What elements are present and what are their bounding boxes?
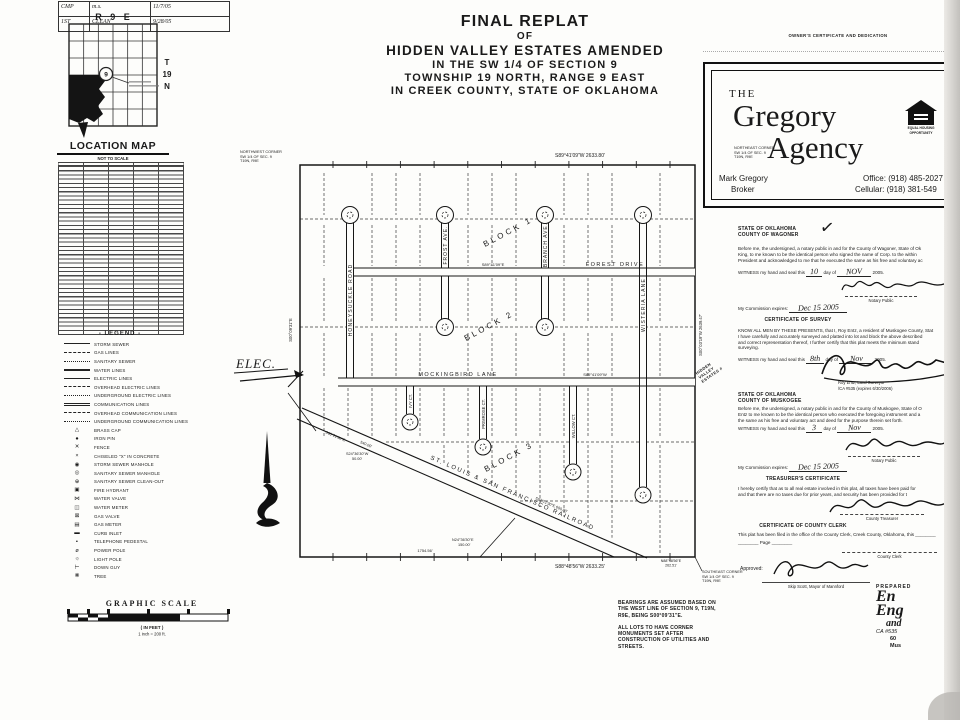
scan-corner-smudge [928, 692, 960, 720]
west-bearing: S00°09'31"E [288, 318, 293, 342]
legend-item: ⊢DOWN GUY [60, 563, 235, 572]
title-line: HIDDEN VALLEY ESTATES AMENDED [350, 43, 700, 59]
legend-label: LIGHT POLE [94, 557, 122, 562]
muskogee-county: COUNTY OF MUSKOGEE [738, 398, 802, 404]
commission-blank: Dec 15 2005 [789, 464, 847, 472]
scale-ticks [67, 609, 230, 614]
street-frost: FROST AVE. [443, 226, 449, 265]
legend-label: UNDERGROUND COMMUNICATION LINES [94, 419, 188, 424]
handwritten-date: Dec 15 2005 [798, 463, 839, 470]
block-1-label: BLOCK 1 [482, 215, 535, 249]
title-line: FINAL REPLAT [350, 12, 700, 31]
legend-title: - LEGEND - [60, 331, 180, 337]
cert-text-line: the same as his free and voluntary act a… [738, 418, 903, 424]
title-line: TOWNSHIP 19 NORTH, RANGE 9 EAST [350, 72, 700, 85]
legend-item: ▬CURB INLET [60, 529, 235, 538]
witness-text: WITNESS my hand and seal this [738, 357, 805, 362]
legend-label: TELEPHONE PEDESTAL [94, 539, 148, 544]
legend-item: △BRASS CAP [60, 426, 235, 435]
illegible-note [129, 81, 151, 83]
se-dim: 262.51' [665, 564, 677, 568]
legend-label: STORM SEWER [94, 342, 129, 347]
light-pole-icon: ☼ [60, 555, 94, 563]
legend-label: WATER METER [94, 505, 128, 510]
line-sample-icon [60, 418, 94, 426]
curve-table [58, 162, 184, 335]
legend-label: IRON PIN [94, 436, 115, 441]
witness-text: 2005. [873, 426, 885, 431]
cert-text-line: This plat has been filed in the office o… [738, 532, 936, 538]
legend-item: ❋TREE [60, 572, 235, 581]
legend-label: POWER POLE [94, 548, 126, 553]
chiseled-x-icon: × [60, 452, 94, 460]
legend-item: ELECTRIC LINES [60, 374, 235, 383]
title-line: IN THE SW 1/4 OF SECTION 9 [350, 59, 700, 72]
legend-item: GAS LINES [60, 349, 235, 358]
agency-name-agency: Agency [767, 130, 863, 166]
scale-title: GRAPHIC SCALE [106, 599, 198, 608]
clerk-cert-title: CERTIFICATE OF COUNTY CLERK [728, 523, 878, 529]
cert-text-line: President and acknowledged to me that he… [738, 258, 923, 264]
surveyor-license: /CA #535 (expires 6/30/2006) [838, 386, 892, 391]
se-bearing: N88°48'56"E [661, 559, 682, 563]
township-label: T [165, 58, 170, 67]
scale-feet-label: ( IN FEET ) [141, 625, 164, 630]
bearings-note: BEARINGS ARE ASSUMED BASED ON THE WEST L… [618, 600, 716, 619]
legend-item: ◫WATER METER [60, 503, 235, 512]
legend-item: ▪TELEPHONE PEDESTAL [60, 538, 235, 547]
commission-label: My Commission expires: [738, 465, 788, 470]
elec-annotation: ELEC. [234, 356, 304, 387]
fire-hydrant-icon: ▣ [60, 486, 94, 494]
survey-notes: BEARINGS ARE ASSUMED BASED ON THE WEST L… [618, 600, 716, 650]
handwritten-date: Dec 15 2005 [798, 304, 839, 311]
mockingbird-bearing: S89°41'09"W [583, 372, 607, 377]
legend-item: ●IRON PIN [60, 435, 235, 444]
commission-line: My Commission expires: Dec 15 2005 [738, 464, 847, 472]
notary-caption: Notary Public [845, 296, 917, 303]
leader-line [112, 77, 129, 83]
cert-text-line: ________ Page ________ [738, 540, 792, 546]
equal-housing-logo: EQUAL HOUSING OPPORTUNITY [901, 100, 941, 136]
page-title: FINAL REPLAT OF HIDDEN VALLEY ESTATES AM… [350, 12, 700, 98]
treasurer-cert-title: TREASURER'S CERTIFICATE [728, 476, 878, 482]
handwritten-month: Nov [848, 425, 861, 431]
street-forest: FOREST DRIVE [586, 262, 645, 268]
east-bearing: S00°03'19"W 2639.47' [698, 314, 703, 356]
nw-corner-note: NORTHWEST CORNER SW 1/4 OF SEC. 9 T19N, … [240, 150, 296, 164]
day-blank: 3 [806, 425, 822, 433]
broker-name: Mark Gregory [719, 174, 768, 183]
broker-role: Broker [731, 185, 755, 194]
handwritten-day: 10 [810, 269, 818, 275]
witness-text: day of [823, 270, 836, 275]
tree-icon: ❋ [60, 572, 94, 580]
title-line: IN CREEK COUNTY, STATE OF OKLAHOMA [350, 85, 700, 98]
witness-text: day of [823, 426, 836, 431]
legend-item: UNDERGROUND ELECTRIC LINES [60, 392, 235, 401]
street-willow: WILLOW CT. [571, 414, 576, 438]
legend-item: ×CHISELED "X" IN CONCRETE [60, 452, 235, 461]
legend-item: ⊠GAS VALVE [60, 512, 235, 521]
scan-edge-band [944, 0, 960, 720]
title-line: OF [350, 31, 700, 43]
cert-text-line: and correct representation thereof, I fu… [738, 340, 919, 346]
legend-label: GAS VALVE [94, 514, 120, 519]
cert-text-line: surveying. [738, 345, 759, 351]
mayor-signature [770, 556, 870, 582]
day-blank: 10 [806, 269, 822, 277]
wagoner-county: COUNTY OF WAGONER [738, 232, 799, 238]
south-partial-dim: 1754.56' [417, 548, 432, 553]
legend-label: FENCE [94, 445, 110, 450]
legend-label: GAS METER [94, 522, 122, 527]
legend-label: TREE [94, 574, 107, 579]
street-wisteria: WISTERIA LANE [641, 278, 647, 332]
graphic-scale: GRAPHIC SCALE ( IN FEET ) 1 inch = 200 f… [60, 597, 245, 643]
telephone-pedestal-icon: ▪ [60, 538, 94, 546]
witness-text: WITNESS my hand and seal this [738, 270, 805, 275]
lake-tail [78, 122, 88, 138]
legend-label: GAS LINES [94, 350, 119, 355]
legend-label: UNDERGROUND ELECTRIC LINES [94, 393, 171, 398]
legend-label: ELECTRIC LINES [94, 376, 132, 381]
legend-item: UNDERGROUND COMMUNICATION LINES [60, 417, 235, 426]
legend-item: ◉STORM SEWER MANHOLE [60, 460, 235, 469]
line-sample-icon [60, 349, 94, 357]
forest-bearing: S89°41'09"E [482, 262, 505, 267]
legend-item: STORM SEWER [60, 340, 235, 349]
location-map: R 9 E 9 T 19 N [57, 10, 182, 138]
range-label: R 9 E [95, 12, 133, 22]
legend-label: WATER LINES [94, 368, 125, 373]
line-sample-icon [60, 375, 94, 383]
sanitary-manhole-icon: ◎ [60, 469, 94, 477]
location-map-title: LOCATION MAP [57, 140, 169, 155]
legend-label: BRASS CAP [94, 428, 121, 433]
legend-label: OVERHEAD ELECTRIC LINES [94, 385, 160, 390]
legend-item: øPOWER POLE [60, 546, 235, 555]
south-bearing: S88°48'56"W 2633.25' [555, 564, 605, 570]
scale-ratio-label: 1 inch = 200 ft. [138, 632, 166, 637]
handwritten-day: 3 [812, 425, 816, 431]
witness-text: 2005. [873, 270, 885, 275]
fence-icon: ✕ [60, 443, 94, 451]
mayor-caption: Skip Scott, Mayor of Mannford [762, 582, 870, 589]
north-arrow [256, 431, 280, 527]
cleanout-icon: ⊕ [60, 478, 94, 486]
storm-manhole-icon: ◉ [60, 461, 94, 469]
north-bearing: S89°41'09"W 2633.80' [555, 153, 605, 159]
curb-inlet-icon: ▬ [60, 529, 94, 537]
legend-label: SANITARY SEWER MANHOLE [94, 471, 160, 476]
block-2-label: BLOCK 2 [463, 309, 516, 343]
cellular-phone: Cellular: (918) 381-549 [855, 185, 937, 194]
office-phone: Office: (918) 485-2027 [863, 174, 943, 183]
lake-shape [69, 75, 105, 123]
legend-item: ▣FIRE HYDRANT [60, 486, 235, 495]
illegible-note [129, 85, 159, 87]
line-sample-icon [60, 340, 94, 348]
rail-bearing: S63°21'30"E [325, 430, 347, 442]
notary-signature [840, 432, 950, 456]
legend-label: DOWN GUY [94, 565, 120, 570]
treasurer-caption: County Treasurer [840, 514, 924, 521]
legend-label: SANITARY SEWER CLEAN-OUT [94, 479, 164, 484]
brass-cap-icon: △ [60, 426, 94, 434]
legend: - LEGEND - STORM SEWER GAS LINES SANITAR… [60, 331, 235, 581]
dotted-line [703, 51, 946, 52]
legend-label: COMMUNICATION LINES [94, 402, 149, 407]
water-meter-icon: ◫ [60, 504, 94, 512]
legend-item: ✕FENCE [60, 443, 235, 452]
legend-item: OVERHEAD ELECTRIC LINES [60, 383, 235, 392]
street-mockingbird: MOCKINGBIRD LANE [418, 372, 497, 378]
legend-item: COMMUNICATION LINES [60, 400, 235, 409]
spur-bearing: N24°36'30"E [452, 538, 474, 542]
plat-document-scan: CMP m.s. 11/7/05 1ST CLEAN 9/28/05 R 9 E… [0, 0, 960, 720]
legend-label: OVERHEAD COMMUNICATION LINES [94, 411, 177, 416]
notary-signature [840, 276, 955, 296]
commission-line: My Commission expires: Dec 15 2005 [738, 305, 847, 313]
street-honeysuckle: HONEYSUCKLE ROAD [348, 264, 354, 337]
line-sample-icon [60, 357, 94, 365]
township-label: 19 [163, 70, 172, 79]
legend-label: STORM SEWER MANHOLE [94, 462, 154, 467]
legend-label: CURB INLET [94, 531, 122, 536]
hwy-bearing: S24°36'30"W [346, 452, 369, 456]
approved-label: Approved: [740, 567, 763, 573]
agency-name-gregory: Gregory [733, 98, 836, 134]
power-pole-icon: ø [60, 547, 94, 555]
elec-note: ELEC. [235, 356, 276, 371]
notary-caption: Notary Public [848, 456, 920, 463]
water-valve-icon: ⋈ [60, 495, 94, 503]
legend-item: ◎SANITARY SEWER MANHOLE [60, 469, 235, 478]
street-ivy: IVY CT. [408, 394, 413, 408]
survey-cert-title: CERTIFICATE OF SURVEY [728, 317, 868, 323]
iron-pin-icon: ● [60, 435, 94, 443]
owners-certificate-heading: OWNER'S CERTIFICATE AND DEDICATION [758, 33, 918, 38]
location-map-subtitle: NOT TO SCALE [57, 156, 169, 161]
boundary-ticks [333, 161, 670, 561]
line-sample-icon [60, 366, 94, 374]
pen-checkmark: ✓ [819, 217, 836, 239]
monuments-note: ALL LOTS TO HAVE CORNER MONUMENTS SET AF… [618, 625, 716, 650]
section-number: 9 [104, 72, 108, 79]
legend-item: ☼LIGHT POLE [60, 555, 235, 564]
surveyor-caption: Roy Entz, Land Surveyor [838, 380, 885, 385]
legend-item: OVERHEAD COMMUNICATION LINES [60, 409, 235, 418]
gas-valve-icon: ⊠ [60, 512, 94, 520]
witness-text: WITNESS my hand and seal this [738, 426, 805, 431]
street-primrose: PRIMROSE CT. [481, 399, 486, 429]
commission-blank: Dec 15 2005 [789, 305, 847, 313]
spur-dim: 150.00' [458, 543, 471, 547]
down-guy-icon: ⊢ [60, 564, 94, 572]
legend-item: ▤GAS METER [60, 520, 235, 529]
street-branch: BRANCH AVE. [543, 223, 549, 267]
house-icon [905, 100, 937, 126]
streets [338, 207, 695, 504]
gas-meter-icon: ▤ [60, 521, 94, 529]
legend-label: WATER VALVE [94, 496, 126, 501]
line-sample-icon [60, 400, 94, 408]
commission-label: My Commission expires: [738, 306, 788, 311]
legend-label: FIRE HYDRANT [94, 488, 129, 493]
legend-item: WATER LINES [60, 366, 235, 375]
plat-drawing: S89°41'09"W 2633.80' S88°48'56"W 2633.25… [230, 135, 775, 600]
legend-label: SANITARY SEWER [94, 359, 136, 364]
legend-item: ⋈WATER VALVE [60, 495, 235, 504]
handwritten-month: NOV [846, 269, 862, 275]
legend-item: ⊕SANITARY SEWER CLEAN-OUT [60, 478, 235, 487]
township-label: N [164, 82, 170, 91]
line-sample-icon [60, 383, 94, 391]
legend-label: CHISELED "X" IN CONCRETE [94, 454, 160, 459]
hwy-dim: 50.00' [352, 457, 363, 461]
legend-item: SANITARY SEWER [60, 357, 235, 366]
gregory-agency-card: THE Gregory Agency EQUAL HOUSING OPPORTU… [703, 62, 960, 208]
line-sample-icon [60, 409, 94, 417]
eho-caption: OPPORTUNITY [901, 132, 941, 136]
line-sample-icon [60, 392, 94, 400]
